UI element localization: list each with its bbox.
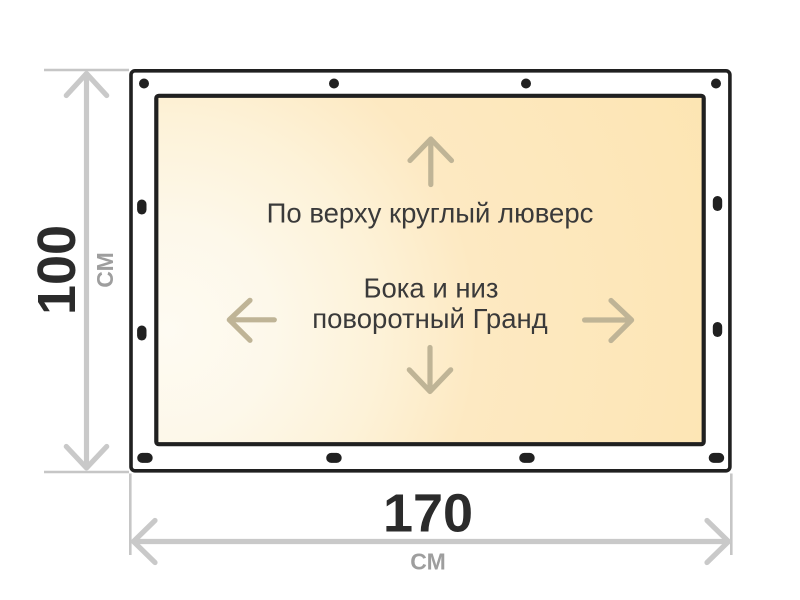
svg-text:СМ: СМ — [410, 549, 445, 575]
svg-text:100: 100 — [27, 225, 87, 315]
svg-text:СМ: СМ — [92, 252, 118, 287]
svg-text:По верху круглый люверс: По верху круглый люверс — [267, 198, 594, 229]
svg-text:170: 170 — [383, 484, 473, 544]
svg-text:Бока и низ: Бока и низ — [363, 273, 498, 304]
svg-text:поворотный Гранд: поворотный Гранд — [312, 303, 547, 334]
